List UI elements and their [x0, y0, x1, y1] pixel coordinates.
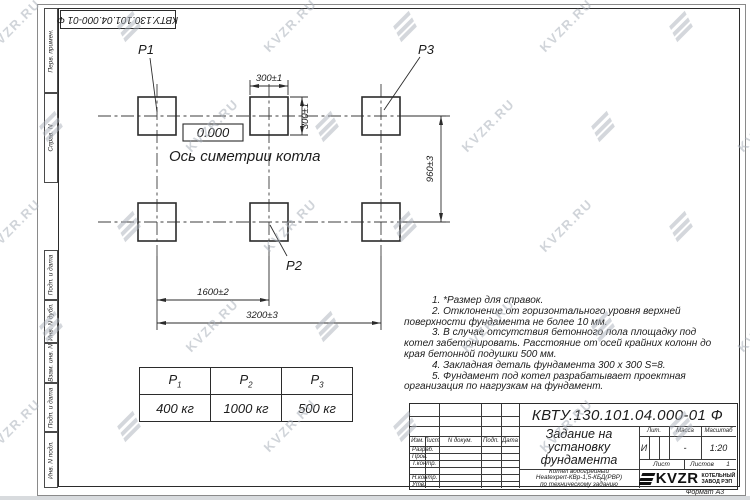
dim-total-width: 3200±3 [246, 310, 278, 321]
note-2: 2. Отклонение от горизонтального уровня … [404, 307, 720, 329]
note-5: 5. Фундамент под котел разрабатывает про… [404, 372, 720, 394]
tb-mass-label: Масса [669, 426, 701, 436]
tb-header-list: Лист [425, 436, 439, 446]
load-table-header-p2: P2 [211, 368, 282, 395]
load-table-header-p3: P3 [282, 368, 353, 395]
arrowhead [157, 298, 166, 302]
tb-sheet-label: Лист [639, 459, 684, 469]
pad-label-p2: P2 [286, 258, 303, 273]
dim-top-height: 300±1 [300, 103, 311, 129]
technical-notes: 1. *Размер для справок. 2. Отклонение от… [404, 296, 720, 393]
tb-header-data: Дата [501, 436, 519, 446]
tb-sheets-cell: Листов 1 [684, 459, 736, 469]
tb-row-utv: Утв. [410, 481, 441, 488]
arrowhead [372, 321, 381, 325]
arrowhead [250, 84, 259, 88]
kvzr-logo-text: KVZR [656, 470, 699, 487]
dim-top-width: 300±1 [256, 73, 282, 84]
pad-label-p3: P3 [418, 42, 435, 57]
tb-scale-value: 1:20 [701, 436, 736, 459]
note-3: 3. В случае отсутствия бетонного пола пл… [404, 328, 720, 360]
tb-lit-value: И [639, 436, 649, 459]
pad-label-p1: P1 [138, 42, 154, 57]
load-value-p2: 1000 кг [211, 395, 282, 422]
elevation-value: 0.000 [197, 125, 230, 140]
arrowhead [439, 116, 443, 125]
tb-designation: КВТУ.130.101.04.000-01 Ф [519, 404, 736, 426]
tb-mass-value: - [669, 436, 701, 459]
note-4: 4. Закладная деталь фундамента 300 x 300… [404, 361, 720, 372]
arrowhead [157, 321, 166, 325]
dim-col-pitch: 1600±2 [197, 287, 229, 298]
arrowhead [439, 213, 443, 222]
tb-document-subtitle: Котел водогрейный Heatexpert-КВр-1,5-КБД… [519, 469, 639, 488]
tb-row-nkontr: Н.контр. [410, 474, 441, 481]
tb-sheets-value: 1 [726, 461, 730, 468]
tb-scale-label: Масштаб [701, 426, 736, 436]
load-table-header-p1: P1 [140, 368, 211, 395]
arrowhead [279, 84, 288, 88]
tb-header-ndokum: N докум. [439, 436, 481, 446]
leader-p1 [150, 58, 157, 112]
arrowhead [260, 298, 269, 302]
leader-p3 [384, 57, 420, 110]
tb-header-podp: Подп. [481, 436, 501, 446]
drawing-sheet: Перв. примен. Справ. N Подп. и дата Инв.… [0, 0, 750, 500]
format-label: Формат А3 [672, 489, 738, 496]
tb-sheets-label: Листов [690, 461, 714, 468]
load-table-value-row: 400 кг 1000 кг 500 кг [140, 395, 353, 422]
load-value-p1: 400 кг [140, 395, 211, 422]
boiler-axis-label: Ось симетрии котла [169, 148, 320, 165]
tb-document-title: Задание на установку фундамента [519, 426, 639, 469]
tb-row-empty [410, 467, 441, 474]
tb-header-izm: Изм. [410, 436, 425, 446]
tb-row-prov: Пров. [410, 453, 441, 460]
tb-lit-label: Лит. [639, 426, 669, 436]
tb-row-tkontr: Т.контр. [410, 460, 441, 467]
load-table-header-row: P1 P2 P3 [140, 368, 353, 395]
kvzr-logo-caption: КОТЕЛЬНЫЙ ЗАВОД РЭП [702, 473, 736, 485]
load-value-p3: 500 кг [282, 395, 353, 422]
tb-row-razrab: Разраб. [410, 446, 441, 453]
dim-rows-gap: 960±3 [425, 155, 436, 182]
title-block: Изм. Лист N докум. Подп. Дата Разраб. Пр… [409, 403, 738, 490]
tb-logo-cell: KVZR КОТЕЛЬНЫЙ ЗАВОД РЭП [639, 469, 736, 488]
kvzr-logo-icon [639, 473, 655, 485]
load-table: P1 P2 P3 400 кг 1000 кг 500 кг [139, 367, 353, 422]
